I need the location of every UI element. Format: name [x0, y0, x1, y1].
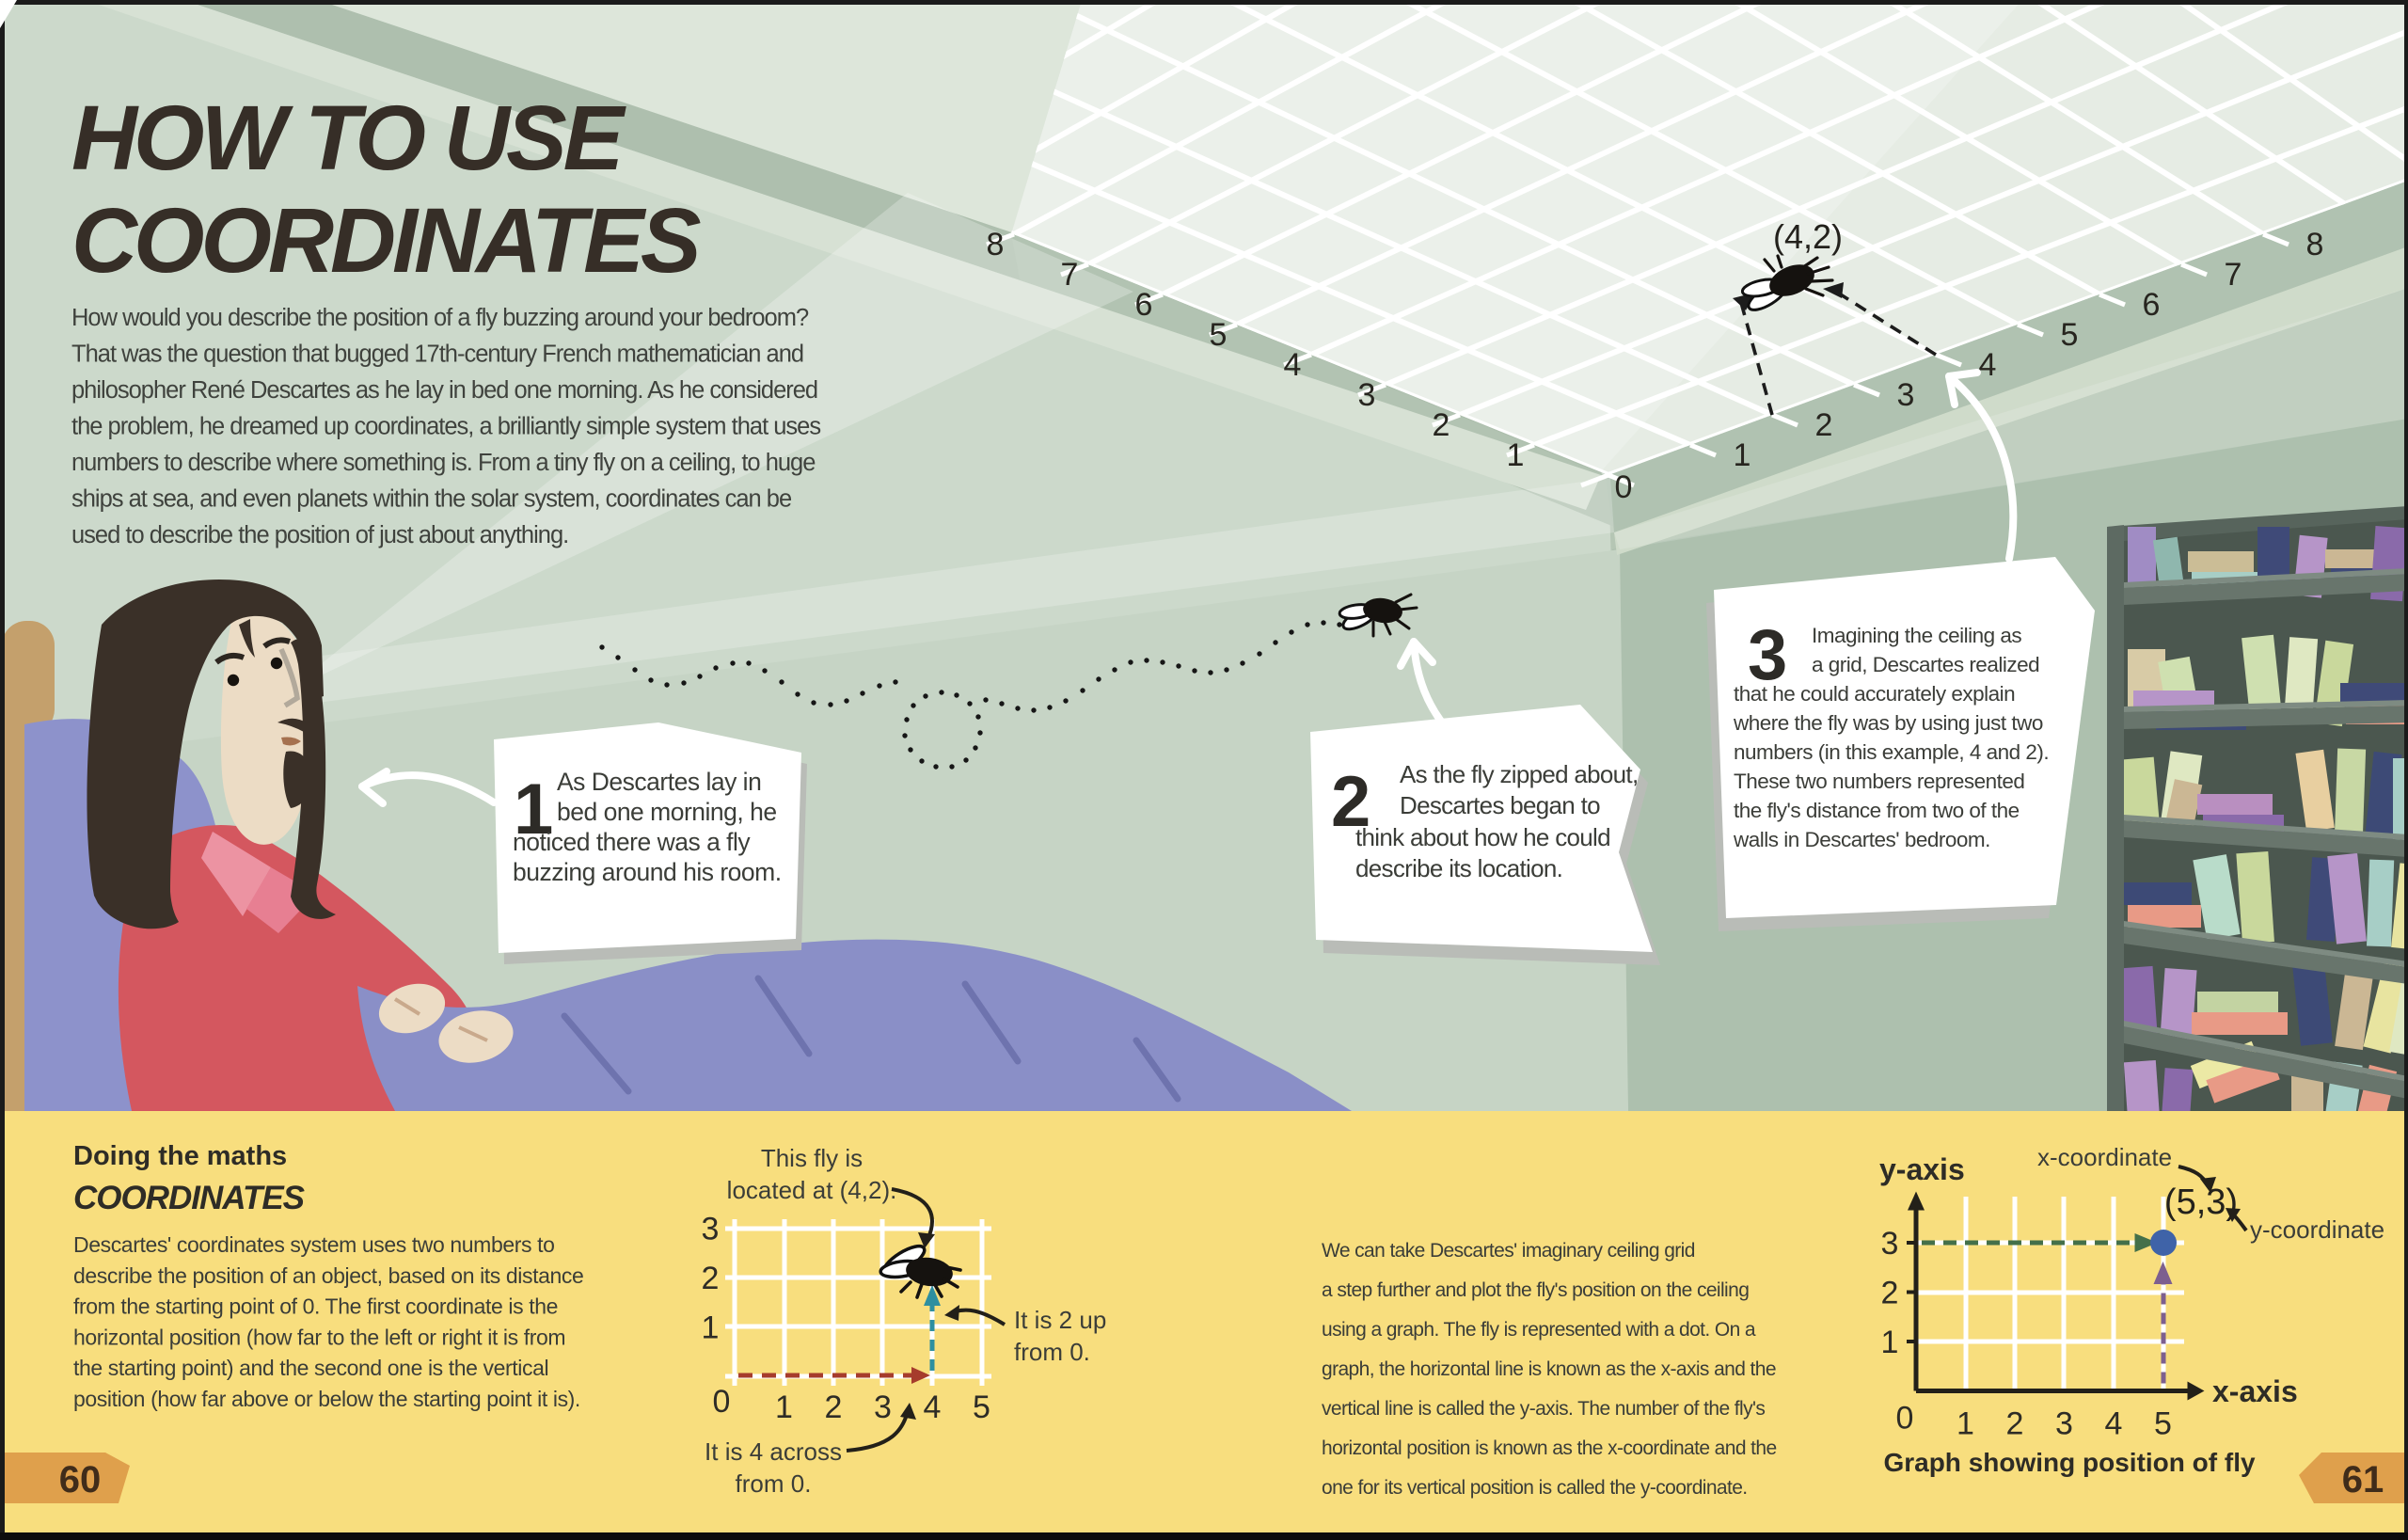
svg-text:a step further and plot the fl: a step further and plot the fly's positi…: [1322, 1279, 1749, 1301]
svg-text:Descartes began to: Descartes began to: [1400, 791, 1600, 819]
svg-text:horizontal position (how far t: horizontal position (how far to the left…: [73, 1325, 565, 1349]
svg-text:the fly's distance from two of: the fly's distance from two of the: [1734, 799, 2020, 822]
svg-text:3: 3: [702, 1212, 720, 1247]
svg-text:using a graph. The fly is repr: using a graph. The fly is represented wi…: [1322, 1319, 1756, 1341]
svg-text:vertical line is called the y-: vertical line is called the y-axis. The …: [1322, 1398, 1765, 1420]
svg-text:y-coordinate: y-coordinate: [2250, 1215, 2384, 1244]
svg-text:1: 1: [775, 1389, 793, 1425]
svg-text:4: 4: [924, 1389, 942, 1425]
svg-text:6: 6: [1135, 287, 1153, 323]
svg-text:4: 4: [2105, 1406, 2123, 1442]
svg-text:from the starting point of 0.: from the starting point of 0. The first …: [73, 1294, 558, 1319]
svg-text:61: 61: [2342, 1459, 2384, 1500]
svg-text:1: 1: [1881, 1325, 1899, 1360]
svg-text:describe its location.: describe its location.: [1355, 854, 1562, 882]
svg-text:2: 2: [1881, 1276, 1899, 1311]
svg-text:that he could accurately expla: that he could accurately explain: [1734, 682, 2015, 706]
svg-text:noticed there was a fly: noticed there was a fly: [513, 828, 751, 856]
svg-text:How would you describe the pos: How would you describe the position of a…: [71, 305, 809, 331]
svg-text:numbers to describe where some: numbers to describe where something is. …: [71, 450, 816, 476]
svg-text:position (how far above or bel: position (how far above or below the sta…: [73, 1387, 580, 1411]
svg-text:We can take Descartes' imagina: We can take Descartes' imaginary ceiling…: [1322, 1240, 1695, 1262]
svg-text:2: 2: [2006, 1406, 2024, 1442]
svg-text:x-axis: x-axis: [2212, 1374, 2298, 1408]
svg-text:HOW TO USE: HOW TO USE: [71, 87, 627, 189]
svg-text:x-coordinate: x-coordinate: [2037, 1143, 2172, 1171]
svg-text:0: 0: [1615, 469, 1633, 505]
svg-text:0: 0: [713, 1384, 731, 1420]
svg-text:6: 6: [2143, 287, 2161, 323]
svg-text:These two numbers represented: These two numbers represented: [1734, 770, 2024, 793]
svg-text:4: 4: [1979, 347, 1997, 383]
svg-text:3: 3: [1897, 377, 1915, 413]
svg-text:think about how he could: think about how he could: [1355, 823, 1610, 851]
svg-text:walls in Descartes' bedroom.: walls in Descartes' bedroom.: [1733, 828, 1990, 851]
svg-text:8: 8: [2306, 227, 2324, 262]
svg-text:This fly is: This fly is: [761, 1144, 863, 1172]
svg-text:3: 3: [1358, 377, 1376, 413]
svg-text:2: 2: [702, 1261, 720, 1296]
svg-text:buzzing around his room.: buzzing around his room.: [513, 858, 782, 886]
svg-text:5: 5: [1210, 317, 1228, 353]
svg-text:1: 1: [1734, 437, 1751, 473]
svg-text:3: 3: [2055, 1406, 2073, 1442]
svg-text:the problem, he dreamed up coo: the problem, he dreamed up coordinates, …: [71, 414, 820, 440]
svg-text:Imagining the ceiling as: Imagining the ceiling as: [1812, 624, 2021, 647]
svg-text:ships at sea, and even planets: ships at sea, and even planets within th…: [71, 486, 792, 513]
svg-text:4: 4: [1284, 347, 1302, 383]
svg-text:5: 5: [2154, 1406, 2172, 1442]
svg-text:from 0.: from 0.: [736, 1469, 812, 1498]
svg-text:Descartes' coordinates system: Descartes' coordinates system uses two n…: [73, 1232, 554, 1257]
svg-text:3: 3: [874, 1389, 892, 1425]
svg-text:0: 0: [1896, 1401, 1914, 1437]
svg-text:7: 7: [2225, 257, 2242, 293]
svg-text:a grid, Descartes realized: a grid, Descartes realized: [1812, 653, 2039, 676]
svg-text:2: 2: [1815, 407, 1833, 443]
svg-text:horizontal position is known a: horizontal position is known as the x-co…: [1322, 1437, 1777, 1459]
svg-text:2: 2: [825, 1389, 843, 1425]
svg-text:5: 5: [973, 1389, 990, 1425]
svg-text:2: 2: [1433, 407, 1450, 443]
svg-text:(4,2): (4,2): [1773, 217, 1843, 256]
svg-text:(5,3): (5,3): [2164, 1183, 2238, 1222]
svg-text:y-axis: y-axis: [1879, 1152, 1965, 1186]
svg-text:1: 1: [702, 1310, 720, 1346]
svg-text:3: 3: [1881, 1226, 1899, 1262]
svg-text:numbers (in this example, 4 an: numbers (in this example, 4 and 2).: [1734, 740, 2049, 764]
svg-text:7: 7: [1061, 257, 1079, 293]
svg-text:COORDINATES: COORDINATES: [71, 189, 701, 292]
svg-text:from 0.: from 0.: [1014, 1338, 1090, 1366]
svg-text:one for its vertical position: one for its vertical position is called …: [1322, 1477, 1748, 1499]
svg-text:graph, the horizontal line is: graph, the horizontal line is known as t…: [1322, 1358, 1776, 1380]
svg-text:1: 1: [1507, 437, 1525, 473]
svg-text:8: 8: [987, 227, 1005, 262]
svg-text:As Descartes lay in: As Descartes lay in: [557, 768, 761, 796]
svg-text:COORDINATES: COORDINATES: [73, 1180, 305, 1216]
svg-text:5: 5: [2061, 317, 2079, 353]
svg-text:It is 2 up: It is 2 up: [1014, 1306, 1106, 1334]
svg-text:As the fly zipped about,: As the fly zipped about,: [1400, 760, 1638, 788]
svg-text:Doing the maths: Doing the maths: [73, 1141, 287, 1171]
svg-text:bed one morning, he: bed one morning, he: [557, 798, 777, 826]
svg-text:where the fly was by using jus: where the fly was by using just two: [1733, 711, 2043, 735]
svg-text:describe the position of an ob: describe the position of an object, base…: [73, 1263, 583, 1288]
svg-text:1: 1: [1956, 1406, 1974, 1442]
svg-text:Graph showing position of fly: Graph showing position of fly: [1883, 1448, 2256, 1477]
svg-text:located at (4,2).: located at (4,2).: [727, 1176, 897, 1204]
svg-text:the starting point) and the se: the starting point) and the second one i…: [73, 1356, 548, 1380]
svg-text:It is 4 across: It is 4 across: [705, 1437, 842, 1466]
svg-text:That was the question that bug: That was the question that bugged 17th-c…: [71, 341, 803, 368]
svg-text:used to describe the position: used to describe the position of just ab…: [71, 522, 568, 548]
svg-text:philosopher René Descartes as: philosopher René Descartes as he lay in …: [71, 377, 817, 404]
svg-text:60: 60: [59, 1459, 102, 1500]
